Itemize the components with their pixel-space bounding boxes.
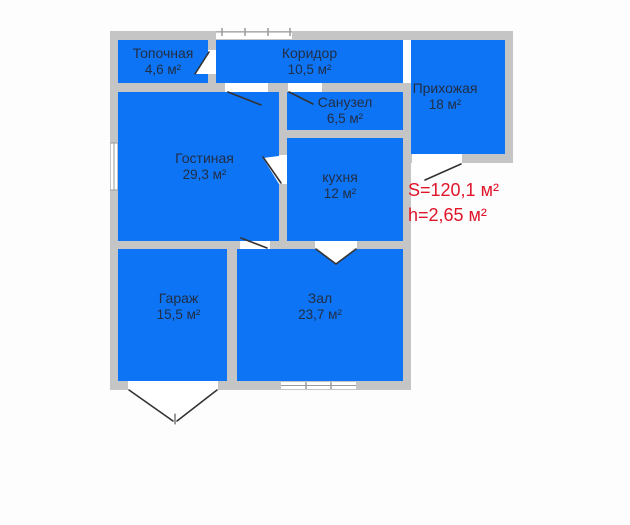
- opening-kuhnya-zal-door: [315, 241, 357, 249]
- opening-topochnaya-door: [208, 50, 216, 74]
- plan-summary: S=120,1 м² h=2,65 м²: [408, 179, 518, 228]
- total-area-label: S=120,1 м²: [408, 179, 518, 202]
- room-gostinaya: [118, 92, 279, 241]
- opening-kuhnya-door: [279, 155, 287, 184]
- opening-koridor-prihozhaya: [403, 40, 411, 83]
- ceiling-height-label: h=2,65 м²: [408, 204, 518, 227]
- wall-garazh-zal: [227, 249, 237, 381]
- wall-sanuzel-kuhnya: [287, 130, 403, 138]
- opening-sanuzel-door: [288, 83, 322, 92]
- room-zal: [237, 249, 403, 381]
- opening-gostinaya-door: [225, 83, 268, 92]
- floorplan-drawing: [0, 0, 630, 525]
- wall-right-outer: [505, 31, 513, 163]
- opening-entrance-door: [412, 154, 462, 163]
- opening-garage-door: [128, 381, 218, 390]
- floorplan: Топочная 4,6 м² Коридор 10,5 м² Прихожая…: [0, 0, 630, 525]
- room-prihozhaya: [411, 40, 505, 154]
- room-sanuzel: [287, 92, 403, 130]
- wall-top-outer: [110, 31, 513, 40]
- window-symbol-bottom: [281, 382, 356, 389]
- window-symbol-left: [110, 143, 118, 190]
- room-topochnaya: [118, 40, 208, 83]
- room-kuhnya: [287, 138, 403, 241]
- room-garazh: [118, 249, 227, 381]
- room-koridor: [216, 40, 403, 83]
- window-symbol-top: [216, 28, 292, 39]
- swing-garage: [128, 390, 218, 421]
